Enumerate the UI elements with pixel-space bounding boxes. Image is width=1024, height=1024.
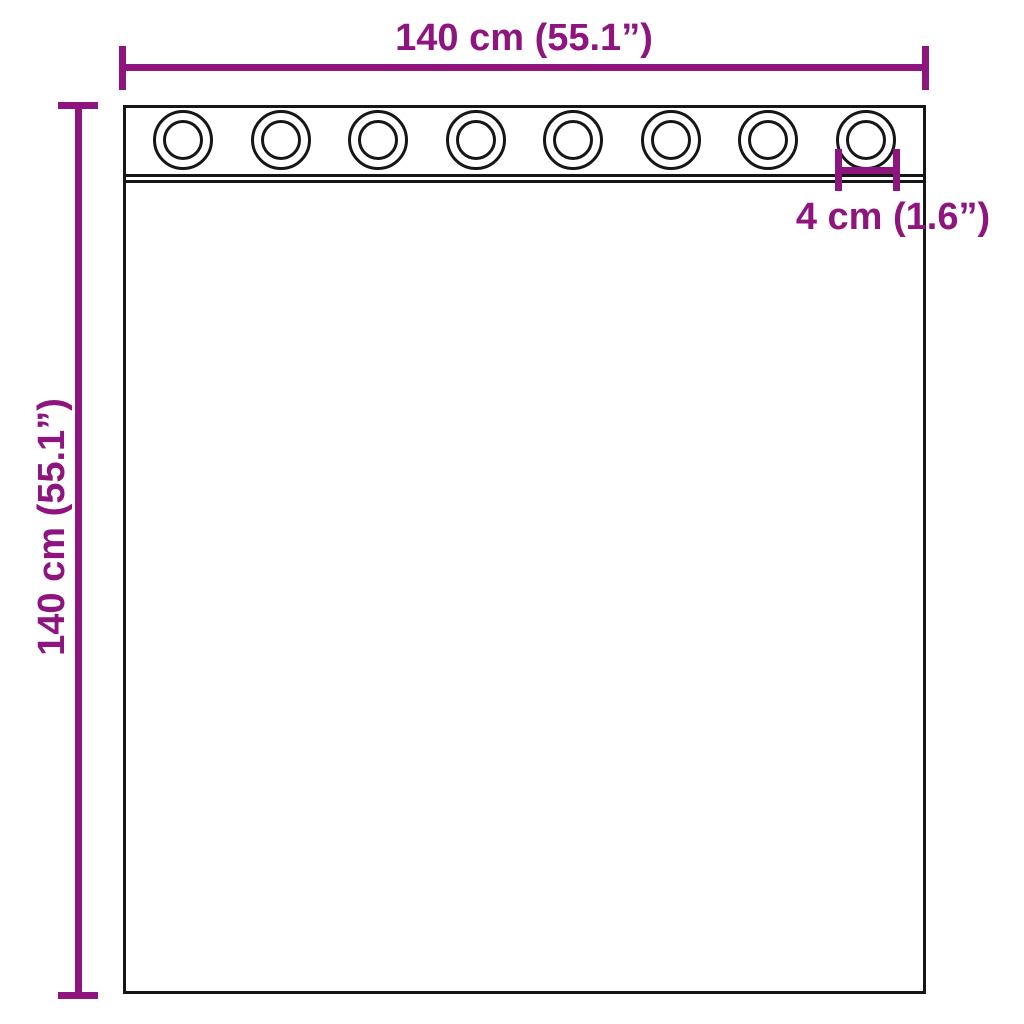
grommet-diameter-tick-right: [893, 149, 900, 191]
grommet-6: [641, 110, 701, 170]
grommet-5: [543, 110, 603, 170]
grommet-diameter-label: 4 cm (1.6”): [793, 196, 993, 238]
grommet-diameter-tick-left: [835, 149, 842, 191]
grommet-hole-icon: [553, 120, 593, 160]
grommet-4: [446, 110, 506, 170]
height-dimension-tick-top: [58, 102, 98, 109]
grommet-diameter-line: [835, 167, 900, 174]
grommet-7: [738, 110, 798, 170]
dimension-diagram: 140 cm (55.1”) 140 cm (55.1”) 4 cm (1.6”…: [0, 0, 1024, 1024]
grommet-3: [348, 110, 408, 170]
width-dimension-label: 140 cm (55.1”): [324, 17, 724, 59]
grommet-1: [153, 110, 213, 170]
grommet-hole-icon: [261, 120, 301, 160]
grommet-row: [123, 105, 926, 175]
grommet-hole-icon: [651, 120, 691, 160]
grommet-2: [251, 110, 311, 170]
width-dimension-tick-right: [922, 46, 929, 90]
grommet-hole-icon: [358, 120, 398, 160]
curtain-panel-outline: [123, 105, 926, 994]
grommet-hole-icon: [846, 120, 886, 160]
height-dimension-label: 140 cm (55.1”): [31, 327, 73, 727]
header-band-seam-line-2: [123, 180, 926, 183]
width-dimension-tick-left: [119, 46, 126, 90]
height-dimension-line: [75, 105, 82, 996]
grommet-hole-icon: [456, 120, 496, 160]
grommet-hole-icon: [748, 120, 788, 160]
width-dimension-line: [122, 64, 926, 71]
grommet-hole-icon: [163, 120, 203, 160]
grommet-8: [836, 110, 896, 170]
height-dimension-tick-bottom: [58, 992, 98, 999]
